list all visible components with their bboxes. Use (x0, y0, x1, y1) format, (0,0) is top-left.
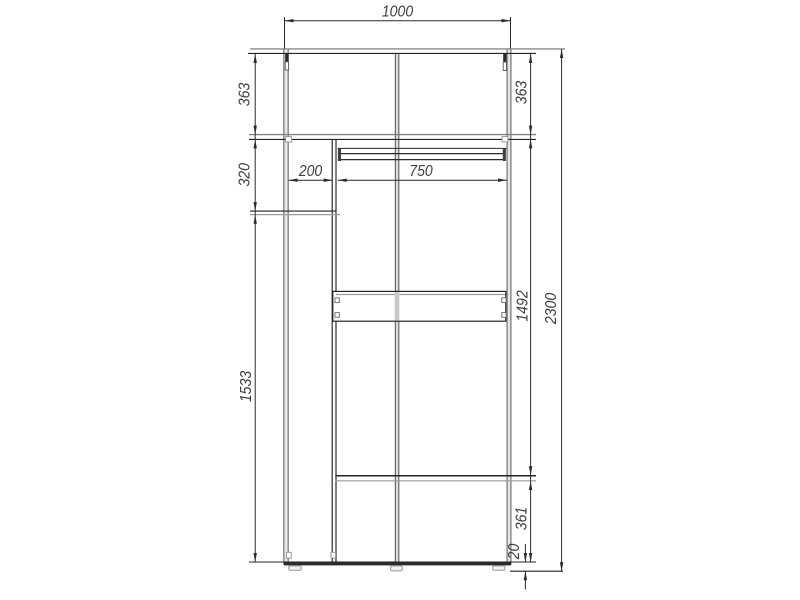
svg-text:2300: 2300 (542, 292, 560, 325)
svg-text:1000: 1000 (382, 3, 414, 21)
svg-text:361: 361 (513, 507, 531, 530)
svg-text:750: 750 (409, 162, 433, 180)
svg-text:320: 320 (235, 162, 253, 186)
svg-text:363: 363 (512, 80, 530, 104)
svg-text:1533: 1533 (237, 370, 255, 402)
svg-text:363: 363 (235, 82, 253, 106)
svg-text:1492: 1492 (514, 290, 532, 322)
svg-text:200: 200 (298, 162, 323, 180)
svg-text:20: 20 (505, 543, 523, 560)
